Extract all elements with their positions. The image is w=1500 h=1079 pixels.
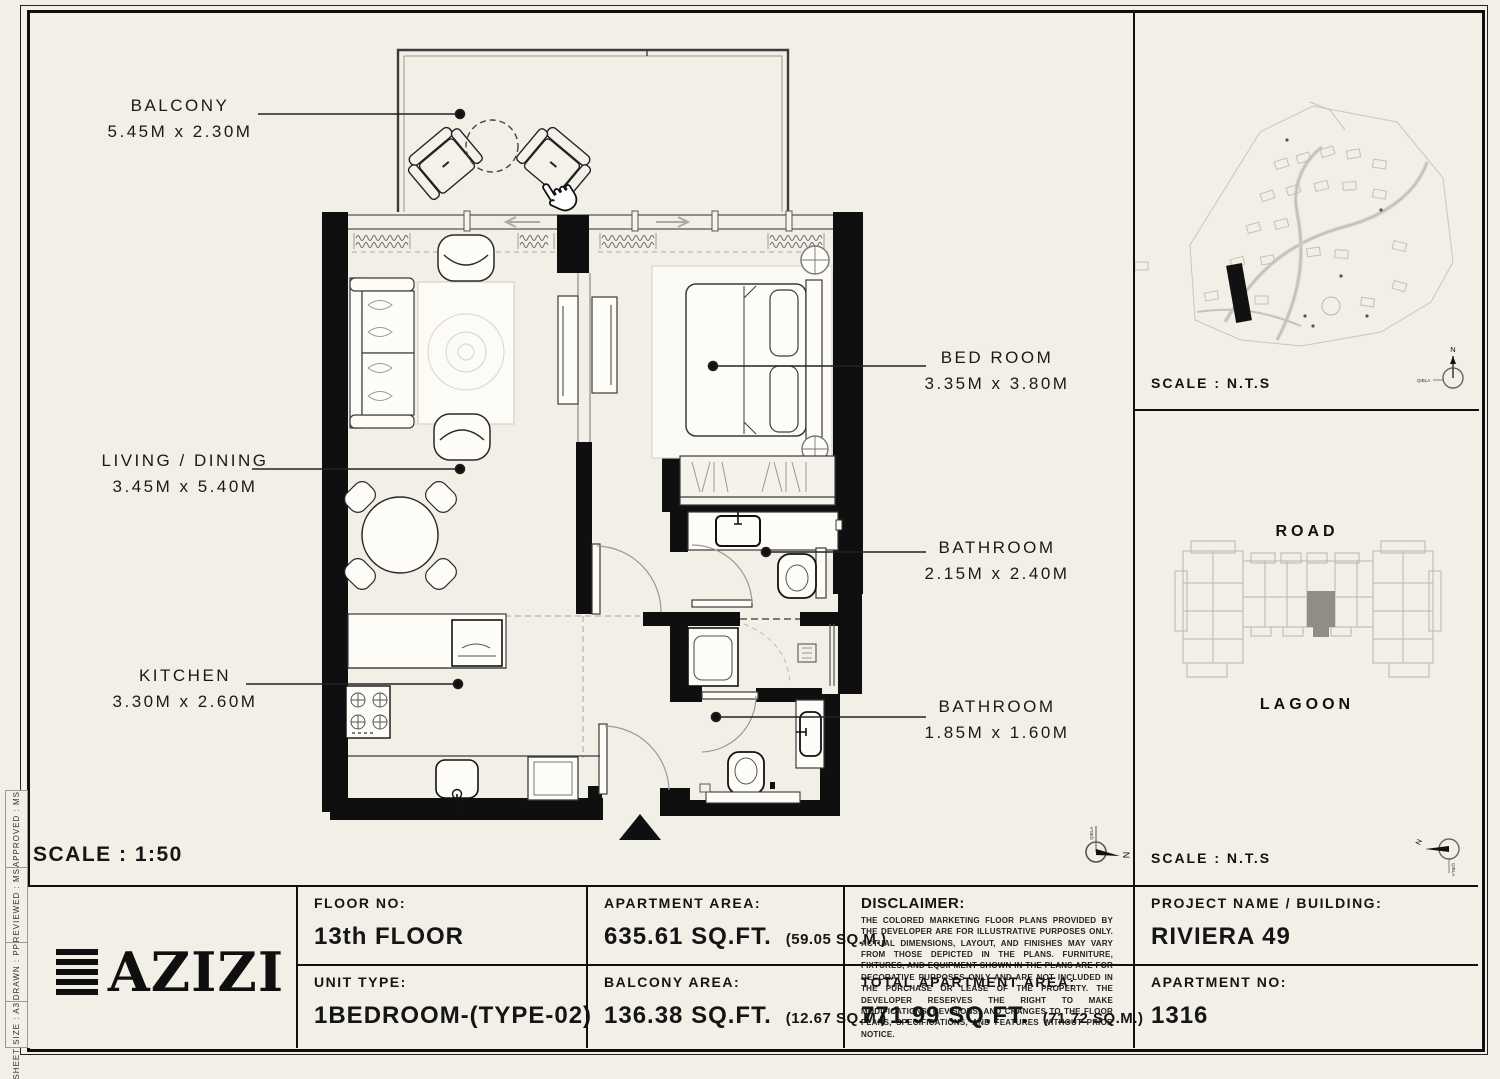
drawn-label: DRAWN : PP [12, 943, 21, 1000]
floor-no-label: FLOOR NO: [314, 895, 586, 911]
disclaimer-cell: DISCLAIMER: THE COLORED MARKETING FLOOR … [843, 887, 1133, 964]
balcony-area-cell: BALCONY AREA: 136.38 SQ.FT.(12.67 SQ.M.) [586, 964, 843, 1048]
sheet-size-label: SHEET SIZE : A3 [12, 1002, 21, 1079]
bedroom-label: BED ROOM 3.35M x 3.80M [892, 345, 1102, 398]
project-name-value: RIVIERA 49 [1151, 923, 1478, 951]
kitchen-label: KITCHEN 3.30M x 2.60M [85, 663, 285, 716]
sheet-size-cell: SHEET SIZE : A3 [6, 1002, 27, 1079]
floor-no-cell: FLOOR NO: 13th FLOOR [296, 887, 586, 964]
drawn-cell: DRAWN : PP [6, 943, 27, 1001]
apartment-area-label: APARTMENT AREA: [604, 895, 843, 911]
azizi-logo-bars-icon [56, 949, 98, 995]
room-dims: 1.85M x 1.60M [892, 720, 1102, 746]
room-name: LIVING / DINING [80, 448, 290, 474]
project-name-cell: PROJECT NAME / BUILDING: RIVIERA 49 [1133, 887, 1478, 964]
apartment-no-cell: APARTMENT NO: 1316 [1133, 964, 1478, 1048]
logo-cell: AZIZI [28, 887, 296, 1048]
floor-no-value: 13th FLOOR [314, 923, 586, 951]
right-panel-divider [1133, 13, 1135, 885]
unit-type-value: 1BEDROOM-(TYPE-02) [314, 1002, 586, 1030]
apartment-area-value: 635.61 SQ.FT. [604, 923, 772, 950]
title-block: AZIZI FLOOR NO: 13th FLOOR APARTMENT ARE… [28, 885, 1478, 1048]
azizi-logo: AZIZI [56, 940, 284, 1004]
room-dims: 3.30M x 2.60M [85, 689, 285, 715]
total-area-metric: (71.72 SQ.M.) [1043, 1010, 1144, 1027]
room-dims: 5.45M x 2.30M [80, 119, 280, 145]
total-area-label: TOTAL APARTMENT AREA: [861, 974, 1133, 990]
bathroom1-label: BATHROOM 2.15M x 2.40M [892, 535, 1102, 588]
balcony-area-label: BALCONY AREA: [604, 974, 843, 990]
bathroom2-label: BATHROOM 1.85M x 1.60M [892, 694, 1102, 747]
room-name: KITCHEN [85, 663, 285, 689]
total-area-value: 771.99 SQ.FT. [861, 1002, 1029, 1029]
room-name: BED ROOM [892, 345, 1102, 371]
total-area-cell: TOTAL APARTMENT AREA: 771.99 SQ.FT.(71.7… [843, 964, 1133, 1048]
room-dims: 3.35M x 3.80M [892, 371, 1102, 397]
main-scale-label: SCALE : 1:50 [33, 843, 183, 867]
room-name: BATHROOM [892, 694, 1102, 720]
apartment-no-label: APARTMENT NO: [1151, 974, 1478, 990]
revision-strip: APPROVED : MS REVIEWED : MS DRAWN : PP S… [5, 790, 28, 1048]
approved-cell: APPROVED : MS [6, 791, 27, 868]
brand-name: AZIZI [108, 940, 284, 1004]
project-name-label: PROJECT NAME / BUILDING: [1151, 895, 1478, 911]
apartment-no-value: 1316 [1151, 1002, 1478, 1030]
approved-label: APPROVED : MS [12, 791, 21, 867]
unit-type-label: UNIT TYPE: [314, 974, 586, 990]
unit-type-cell: UNIT TYPE: 1BEDROOM-(TYPE-02) [296, 964, 586, 1048]
balcony-label: BALCONY 5.45M x 2.30M [80, 93, 280, 146]
room-name: BALCONY [80, 93, 280, 119]
living-dining-label: LIVING / DINING 3.45M x 5.40M [80, 448, 290, 501]
apartment-area-cell: APARTMENT AREA: 635.61 SQ.FT.(59.05 SQ.M… [586, 887, 843, 964]
room-name: BATHROOM [892, 535, 1102, 561]
balcony-area-value: 136.38 SQ.FT. [604, 1002, 772, 1029]
reviewed-cell: REVIEWED : MS [6, 868, 27, 943]
room-dims: 2.15M x 2.40M [892, 561, 1102, 587]
reviewed-label: REVIEWED : MS [12, 868, 21, 942]
disclaimer-label: DISCLAIMER: [861, 895, 1133, 912]
room-dims: 3.45M x 5.40M [80, 474, 290, 500]
panel-divider [1133, 409, 1479, 411]
